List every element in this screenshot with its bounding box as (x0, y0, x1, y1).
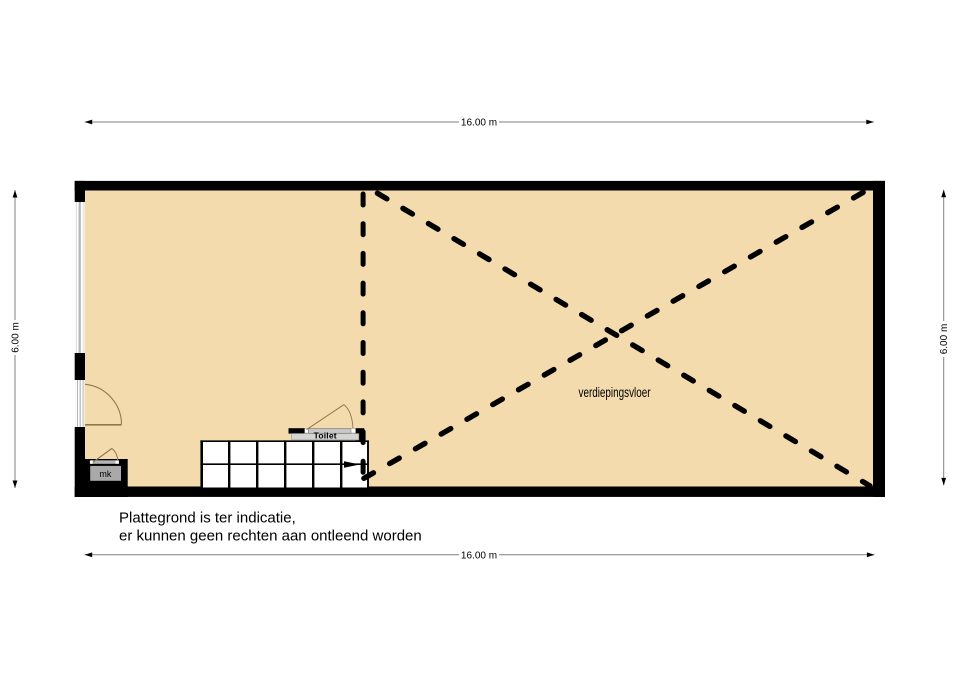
svg-text:Plattegrond is ter indicatie,: Plattegrond is ter indicatie, (119, 509, 296, 526)
svg-text:er kunnen geen rechten aan ont: er kunnen geen rechten aan ontleend word… (119, 527, 422, 544)
svg-text:16.00 m: 16.00 m (461, 550, 497, 561)
svg-text:verdiepingsvloer: verdiepingsvloer (579, 384, 651, 400)
svg-text:16.00 m: 16.00 m (461, 118, 497, 129)
svg-text:Toilet: Toilet (314, 431, 337, 441)
svg-text:mk: mk (99, 469, 111, 479)
svg-text:6.00 m: 6.00 m (10, 322, 21, 353)
svg-text:6.00 m: 6.00 m (939, 324, 950, 355)
